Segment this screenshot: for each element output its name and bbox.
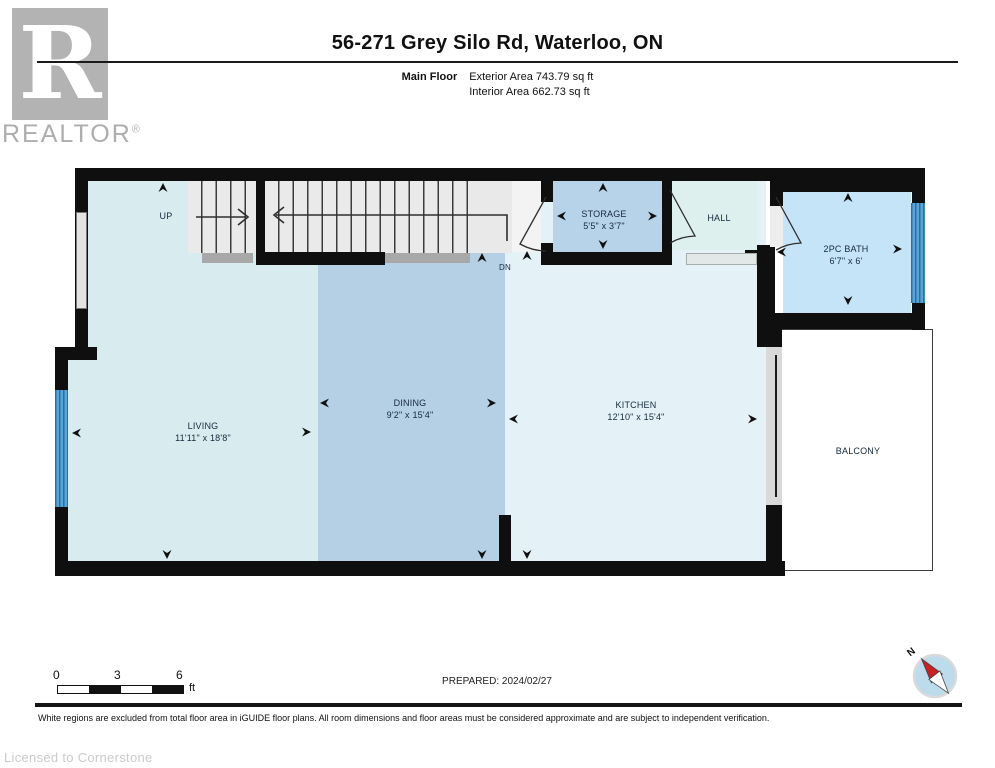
wall-storage-left-top <box>541 173 553 202</box>
label-hall-name: HALL <box>707 212 730 224</box>
wall-storage-bottom <box>541 252 670 265</box>
wall-bath-left-top <box>770 168 783 208</box>
registered-symbol: ® <box>132 124 142 136</box>
title-divider <box>37 61 958 63</box>
scale-unit: ft <box>189 682 195 694</box>
window-bath <box>911 203 925 303</box>
label-bath-dims: 6'7" x 6' <box>824 255 869 267</box>
wall-kitchen-right-stub <box>766 329 782 347</box>
label-balcony-name: BALCONY <box>836 445 880 457</box>
label-dining-name: DINING <box>387 397 434 409</box>
wall-bottom <box>55 561 785 576</box>
compass-n-label: N <box>905 646 917 659</box>
label-dining: DINING 9'2" x 15'4" <box>387 397 434 421</box>
label-hall: HALL <box>707 212 730 224</box>
wall-kitchen-right-bottom <box>766 505 782 563</box>
scale-bar <box>57 685 184 694</box>
room-living-nook <box>68 360 90 561</box>
sliding-door-leaf <box>775 355 777 497</box>
sliding-door-balcony <box>766 347 782 505</box>
scale-tick-0: 0 <box>53 668 60 682</box>
label-dining-dims: 9'2" x 15'4" <box>387 409 434 421</box>
stair-landing-strip-right <box>385 253 470 263</box>
scale-bar-segment <box>152 686 183 693</box>
wall-stair-divider <box>256 176 265 258</box>
scale-tick-6: 6 <box>176 668 183 682</box>
label-bath: 2PC BATH 6'7" x 6' <box>824 243 869 267</box>
label-bath-name: 2PC BATH <box>824 243 869 255</box>
stair-landing-strip-left <box>202 253 253 263</box>
page-title: 56-271 Grey Silo Rd, Waterloo, ON <box>0 32 995 55</box>
exterior-area: Exterior Area 743.79 sq ft <box>469 70 593 85</box>
wall-bath-right-top <box>912 168 925 203</box>
wall-storage-right <box>662 176 672 265</box>
license-text: Licensed to Cornerstone <box>4 750 153 765</box>
scale-bar-segment <box>121 686 152 693</box>
floor-label: Main Floor <box>402 70 458 100</box>
label-storage-name: STORAGE <box>581 208 626 220</box>
realtor-wordmark: REALTOR® <box>2 120 142 149</box>
hall-threshold <box>686 253 757 265</box>
label-balcony: BALCONY <box>836 445 880 457</box>
storage-door-zone <box>512 181 541 252</box>
scale-bar-segment <box>58 686 89 693</box>
prepared-date: PREPARED: 2024/02/27 <box>347 676 647 687</box>
label-storage-dims: 5'5" x 3'7" <box>581 220 626 232</box>
wall-bath-bottom <box>770 313 925 329</box>
interior-area: Interior Area 662.73 sq ft <box>469 85 593 100</box>
label-dn: DN <box>499 262 511 274</box>
bath-door-threshold <box>770 206 783 247</box>
realtor-logo: R <box>12 8 108 120</box>
floorplan-page: R REALTOR® 56-271 Grey Silo Rd, Waterloo… <box>0 0 995 768</box>
window-living <box>55 390 68 507</box>
stair-run-lower <box>188 181 256 253</box>
disclaimer-text: White regions are excluded from total fl… <box>38 713 958 723</box>
scale-tick-3: 3 <box>114 668 121 682</box>
label-living-name: LIVING <box>175 420 231 432</box>
compass-icon: N <box>898 638 970 710</box>
label-kitchen: KITCHEN 12'10" x 15'4" <box>607 399 664 423</box>
stair-run-upper <box>265 181 470 253</box>
label-living-dims: 11'11" x 18'8" <box>175 432 231 444</box>
wall-stair-bottom <box>256 252 385 265</box>
scale-bar-segment <box>89 686 120 693</box>
stair-landing-top <box>470 181 512 253</box>
realtor-wordmark-text: REALTOR <box>2 120 132 148</box>
label-kitchen-name: KITCHEN <box>607 399 664 411</box>
footer-divider <box>35 703 962 707</box>
wall-dining-kitchen-stub <box>499 515 511 561</box>
label-storage: STORAGE 5'5" x 3'7" <box>581 208 626 232</box>
label-up: UP <box>160 210 173 222</box>
entry-door <box>76 212 87 309</box>
label-living: LIVING 11'11" x 18'8" <box>175 420 231 444</box>
wall-bath-top <box>770 168 925 192</box>
label-kitchen-dims: 12'10" x 15'4" <box>607 411 664 423</box>
floor-summary: Main Floor Exterior Area 743.79 sq ft In… <box>0 70 995 100</box>
